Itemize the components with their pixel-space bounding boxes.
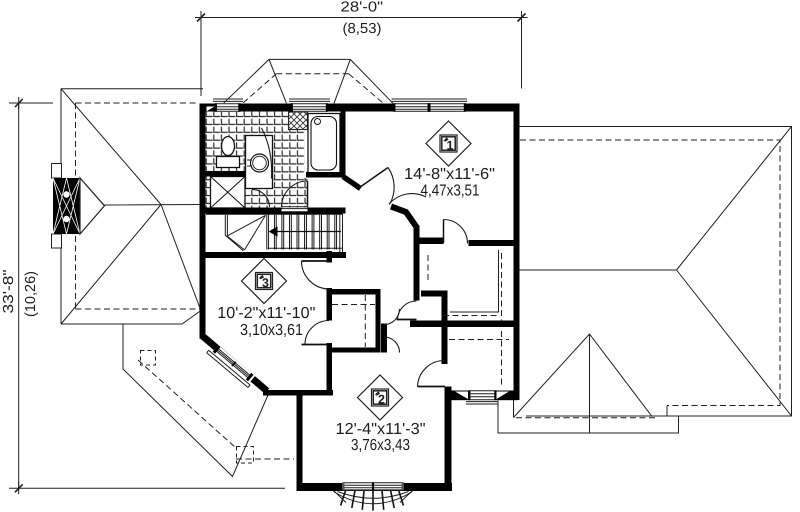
svg-text:(10,26): (10,26) — [23, 271, 39, 317]
svg-text:2: 2 — [378, 392, 385, 406]
svg-text:3,10x3,61: 3,10x3,61 — [240, 322, 303, 339]
svg-text:33'-8": 33'-8" — [1, 270, 17, 314]
svg-text:28'-0": 28'-0" — [341, 0, 384, 15]
svg-text:3,76x3,43: 3,76x3,43 — [351, 437, 410, 454]
svg-text:12'-4"x11'-3": 12'-4"x11'-3" — [336, 421, 426, 438]
svg-text:(8,53): (8,53) — [343, 21, 382, 37]
svg-text:4,47x3,51: 4,47x3,51 — [421, 183, 480, 200]
svg-text:3: 3 — [262, 276, 269, 290]
svg-text:10'-2"x11'-10": 10'-2"x11'-10" — [217, 305, 315, 322]
svg-text:1: 1 — [447, 138, 454, 152]
svg-text:14'-8"x11'-6": 14'-8"x11'-6" — [404, 166, 495, 183]
